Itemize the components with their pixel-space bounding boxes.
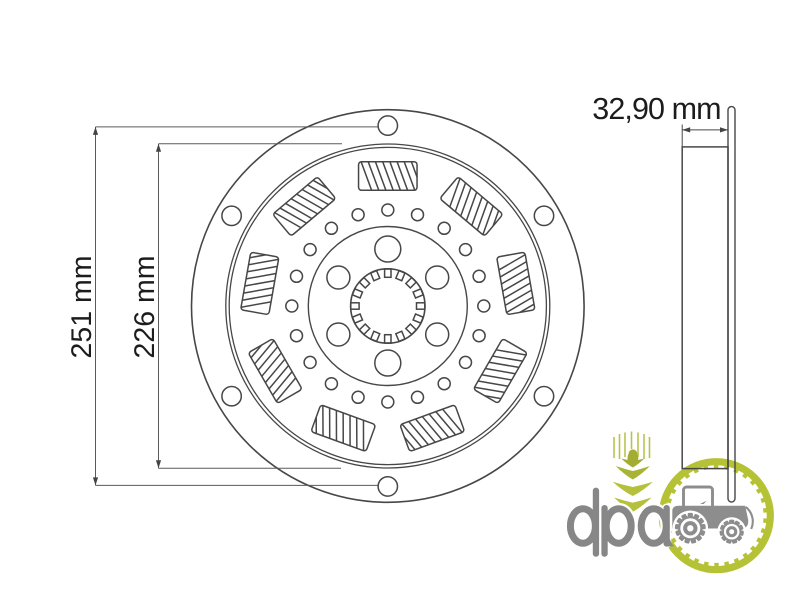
svg-text:32,90 mm: 32,90 mm [592, 92, 720, 126]
svg-text:251 mm: 251 mm [66, 256, 98, 359]
svg-text:226 mm: 226 mm [129, 256, 161, 359]
